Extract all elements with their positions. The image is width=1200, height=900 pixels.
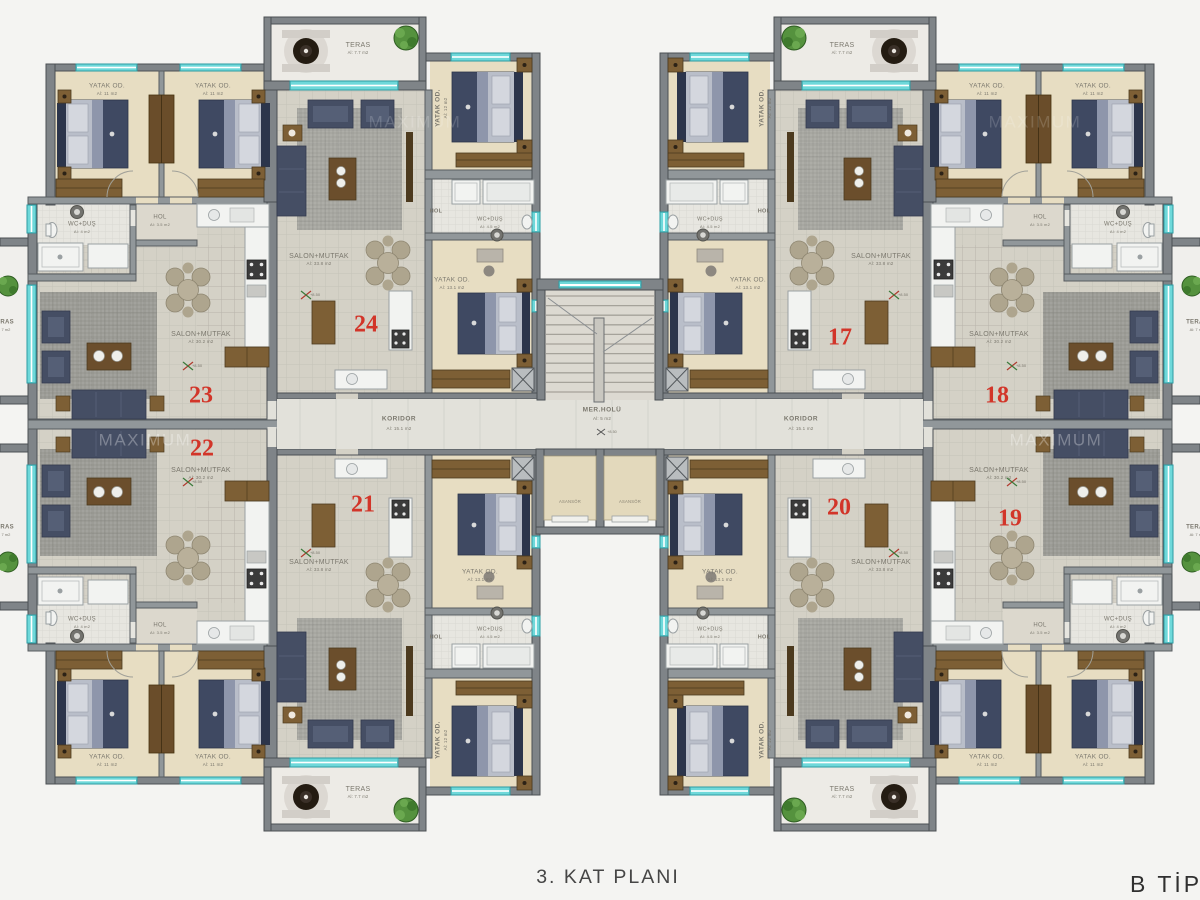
svg-text:+8.50: +8.50 [898,550,909,555]
svg-text:YATAK OD.: YATAK OD. [969,754,1005,761]
svg-text:MAXIMUM: MAXIMUM [99,430,192,449]
svg-text:Al: 11 m2: Al: 11 m2 [97,91,118,96]
svg-text:SALON+MUTFAK: SALON+MUTFAK [289,559,349,566]
svg-text:Al: 12 m2: Al: 12 m2 [767,729,772,750]
svg-text:Al: 13.1 m2: Al: 13.1 m2 [708,577,733,582]
svg-text:+8.50: +8.50 [898,292,909,297]
svg-text:Al: 11 m2: Al: 11 m2 [203,762,224,767]
svg-text:YATAK OD.: YATAK OD. [759,89,766,127]
svg-text:TERAS: TERAS [1186,320,1200,326]
svg-text:Al: 4.5 m2: Al: 4.5 m2 [700,634,721,639]
svg-text:WC+DUŞ: WC+DUŞ [1104,222,1132,228]
svg-text:TERAS: TERAS [0,525,14,531]
svg-text:KORIDOR: KORIDOR [784,416,818,423]
svg-text:Al: 11 m2: Al: 11 m2 [977,91,998,96]
svg-text:Al: 33.8 m2: Al: 33.8 m2 [307,567,332,572]
svg-text:+8.50: +8.50 [1016,479,1027,484]
svg-text:+8.50: +8.50 [192,363,203,368]
svg-text:23: 23 [189,383,213,409]
svg-text:SALON+MUTFAK: SALON+MUTFAK [969,467,1029,474]
svg-text:WC+DUŞ: WC+DUŞ [1104,617,1132,623]
svg-text:HOL: HOL [153,623,167,629]
svg-text:KORIDOR: KORIDOR [382,416,416,423]
svg-text:Al: 11 m2: Al: 11 m2 [1083,91,1104,96]
svg-text:Al: 11 m2: Al: 11 m2 [977,762,998,767]
svg-text:Al: 15.1 m2: Al: 15.1 m2 [789,426,814,431]
svg-text:Al: 30.2 m2: Al: 30.2 m2 [189,339,214,344]
svg-text:Al: 30.2 m2: Al: 30.2 m2 [987,339,1012,344]
svg-text:HOL: HOL [153,215,167,221]
svg-text:Al: 7 m2: Al: 7 m2 [0,532,11,537]
svg-text:+8.50: +8.50 [310,550,321,555]
svg-text:SALON+MUTFAK: SALON+MUTFAK [851,253,911,260]
svg-text:21: 21 [351,492,375,518]
svg-text:Al: 7.7 m2: Al: 7.7 m2 [832,50,853,55]
svg-text:YATAK OD.: YATAK OD. [89,754,125,761]
svg-text:Al: 7.7 m2: Al: 7.7 m2 [832,794,853,799]
svg-text:17: 17 [828,325,852,351]
svg-text:Al: 4.5 m2: Al: 4.5 m2 [480,224,501,229]
svg-text:SALON+MUTFAK: SALON+MUTFAK [289,253,349,260]
svg-text:HOL: HOL [1033,215,1047,221]
svg-text:YATAK OD.: YATAK OD. [89,83,125,90]
svg-text:HOL: HOL [758,634,771,640]
svg-text:Al: 3.5 m2: Al: 3.5 m2 [150,222,171,227]
svg-text:WC+DUŞ: WC+DUŞ [697,626,723,632]
svg-text:B TİPİ: B TİPİ [1130,871,1200,897]
svg-text:+8.50: +8.50 [192,479,203,484]
svg-text:YATAK OD.: YATAK OD. [434,277,470,284]
svg-text:Al: 4.5 m2: Al: 4.5 m2 [480,634,501,639]
svg-text:YATAK OD.: YATAK OD. [195,754,231,761]
svg-text:YATAK OD.: YATAK OD. [759,721,766,759]
svg-text:TERAS: TERAS [830,786,855,793]
svg-text:HOL: HOL [430,208,443,214]
svg-text:Al: 13.1 m2: Al: 13.1 m2 [736,285,761,290]
svg-text:MAXIMUM: MAXIMUM [369,112,462,131]
svg-text:Al: 33.8 m2: Al: 33.8 m2 [869,567,894,572]
svg-text:Al: 7 m2: Al: 7 m2 [1190,327,1200,332]
svg-text:SALON+MUTFAK: SALON+MUTFAK [171,467,231,474]
svg-text:YATAK OD.: YATAK OD. [702,569,738,576]
svg-text:Al: 4 m2: Al: 4 m2 [74,229,91,234]
svg-text:WC+DUŞ: WC+DUŞ [477,626,503,632]
svg-text:Al: 11 m2: Al: 11 m2 [1083,762,1104,767]
svg-text:HOL: HOL [1033,623,1047,629]
svg-text:Al: 33.8 m2: Al: 33.8 m2 [307,261,332,266]
svg-text:Al: 15.1 m2: Al: 15.1 m2 [387,426,412,431]
svg-text:Al: 11 m2: Al: 11 m2 [97,762,118,767]
svg-text:YATAK OD.: YATAK OD. [435,721,442,759]
svg-text:+8.50: +8.50 [1016,363,1027,368]
svg-text:19: 19 [998,506,1022,532]
svg-text:Al: 7 m2: Al: 7 m2 [1190,532,1200,537]
svg-text:TERAS: TERAS [346,42,371,49]
svg-text:Al: 4.5 m2: Al: 4.5 m2 [700,224,721,229]
svg-text:Al: 5 m2: Al: 5 m2 [593,416,611,421]
svg-text:+8.50: +8.50 [607,430,617,434]
svg-text:Al: 7.7 m2: Al: 7.7 m2 [348,50,369,55]
svg-text:YATAK OD.: YATAK OD. [1075,83,1111,90]
svg-text:WC+DUŞ: WC+DUŞ [697,216,723,222]
svg-text:HOL: HOL [430,634,443,640]
svg-text:Al: 4 m2: Al: 4 m2 [74,624,91,629]
svg-text:WC+DUŞ: WC+DUŞ [68,222,96,228]
svg-text:Al: 13.1 m2: Al: 13.1 m2 [468,577,493,582]
svg-text:20: 20 [827,495,851,521]
svg-text:YATAK OD.: YATAK OD. [730,277,766,284]
svg-text:TERAS: TERAS [0,320,14,326]
svg-text:Al: 7.7 m2: Al: 7.7 m2 [348,794,369,799]
svg-text:Al: 4 m2: Al: 4 m2 [1110,624,1127,629]
svg-text:YATAK OD.: YATAK OD. [969,83,1005,90]
svg-text:YATAK OD.: YATAK OD. [1075,754,1111,761]
svg-text:Al: 11 m2: Al: 11 m2 [203,91,224,96]
svg-text:22: 22 [190,436,214,462]
svg-text:TERAS: TERAS [830,42,855,49]
svg-text:Al: 12 m2: Al: 12 m2 [767,97,772,118]
svg-text:Al: 7 m2: Al: 7 m2 [0,327,11,332]
svg-text:ASANSÖR: ASANSÖR [619,499,641,504]
svg-text:SALON+MUTFAK: SALON+MUTFAK [171,331,231,338]
svg-text:Al: 12 m2: Al: 12 m2 [443,729,448,750]
svg-text:Al: 3.5 m2: Al: 3.5 m2 [150,630,171,635]
svg-text:YATAK OD.: YATAK OD. [195,83,231,90]
svg-text:Al: 13.1 m2: Al: 13.1 m2 [440,285,465,290]
svg-text:Al: 4 m2: Al: 4 m2 [1110,229,1127,234]
svg-text:TERAS: TERAS [346,786,371,793]
svg-text:WC+DUŞ: WC+DUŞ [68,617,96,623]
svg-text:ASANSÖR: ASANSÖR [559,499,581,504]
svg-text:SALON+MUTFAK: SALON+MUTFAK [851,559,911,566]
svg-text:18: 18 [985,383,1009,409]
svg-text:3. KAT PLANI: 3. KAT PLANI [536,866,680,888]
svg-text:SALON+MUTFAK: SALON+MUTFAK [969,331,1029,338]
svg-text:TERAS: TERAS [1186,525,1200,531]
svg-text:MER.HOLÜ: MER.HOLÜ [583,405,622,414]
svg-text:YATAK OD.: YATAK OD. [462,569,498,576]
svg-text:Al: 33.8 m2: Al: 33.8 m2 [869,261,894,266]
svg-text:Al: 3.5 m2: Al: 3.5 m2 [1030,222,1051,227]
svg-text:MAXIMUM: MAXIMUM [989,112,1082,131]
svg-text:HOL: HOL [758,208,771,214]
svg-text:MAXIMUM: MAXIMUM [1010,430,1103,449]
svg-text:Al: 3.5 m2: Al: 3.5 m2 [1030,630,1051,635]
svg-text:24: 24 [354,312,378,338]
svg-text:WC+DUŞ: WC+DUŞ [477,216,503,222]
svg-text:+8.50: +8.50 [310,292,321,297]
